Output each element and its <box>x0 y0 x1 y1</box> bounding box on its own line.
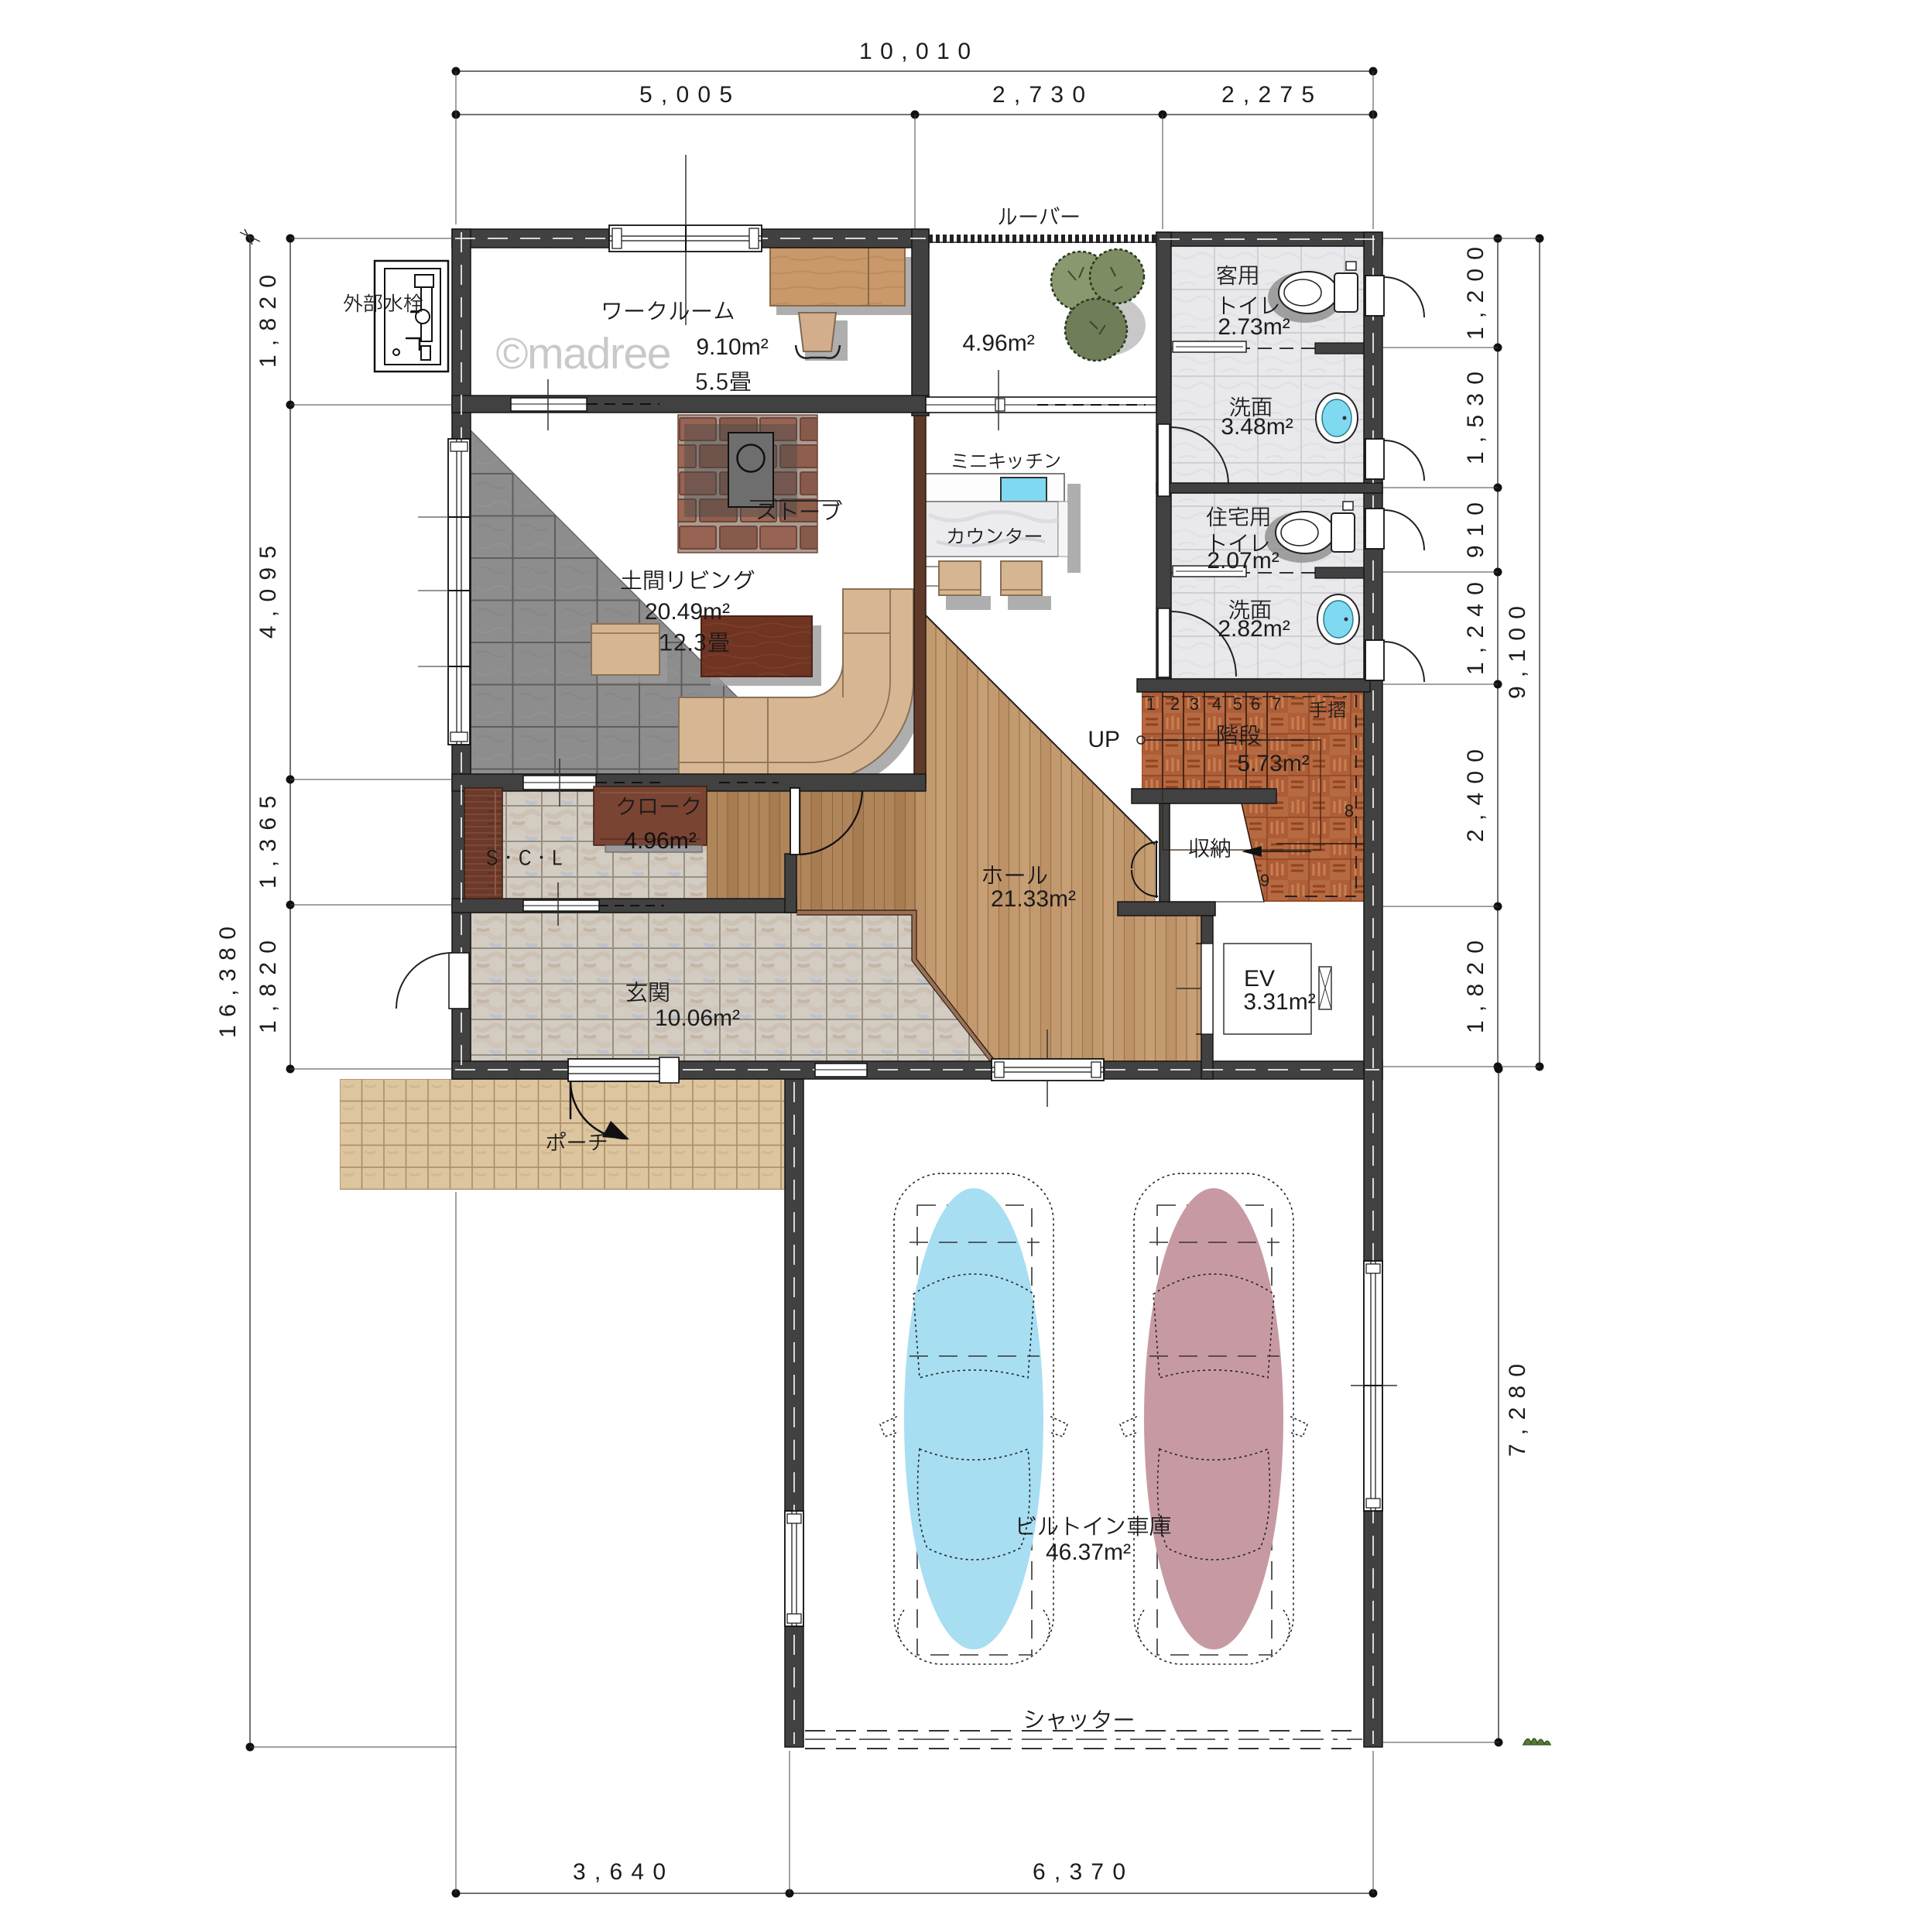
svg-text:21.33m²: 21.33m² <box>991 886 1076 912</box>
svg-text:2.07m²: 2.07m² <box>1207 548 1279 574</box>
svg-text:9: 9 <box>1260 871 1269 890</box>
svg-text:2: 2 <box>1170 694 1180 714</box>
svg-text:8: 8 <box>1345 801 1354 820</box>
svg-text:UP: UP <box>1088 727 1120 752</box>
svg-text:4.96m²: 4.96m² <box>624 828 696 854</box>
svg-text:2.73m²: 2.73m² <box>1218 314 1290 340</box>
svg-text:4.96m²: 4.96m² <box>962 331 1034 356</box>
svg-text:46.37m²: 46.37m² <box>1046 1540 1131 1565</box>
svg-text:910: 910 <box>1463 502 1488 558</box>
svg-text:7: 7 <box>1272 694 1281 714</box>
svg-text:6: 6 <box>1251 694 1260 714</box>
svg-text:10.06m²: 10.06m² <box>655 1005 740 1031</box>
svg-text:9.10m²: 9.10m² <box>696 334 768 360</box>
svg-text:©madree: ©madree <box>496 329 672 379</box>
svg-text:20.49m²: 20.49m² <box>645 599 730 625</box>
svg-text:3.48m²: 3.48m² <box>1221 414 1293 440</box>
svg-text:3.31m²: 3.31m² <box>1243 989 1315 1015</box>
svg-text:EV: EV <box>1244 966 1275 992</box>
svg-text:2.82m²: 2.82m² <box>1218 616 1290 642</box>
svg-text:5.73m²: 5.73m² <box>1237 751 1309 776</box>
svg-text:5: 5 <box>1233 694 1242 714</box>
svg-text:4: 4 <box>1212 694 1221 714</box>
svg-text:3: 3 <box>1190 694 1199 714</box>
svg-text:1: 1 <box>1146 694 1156 714</box>
